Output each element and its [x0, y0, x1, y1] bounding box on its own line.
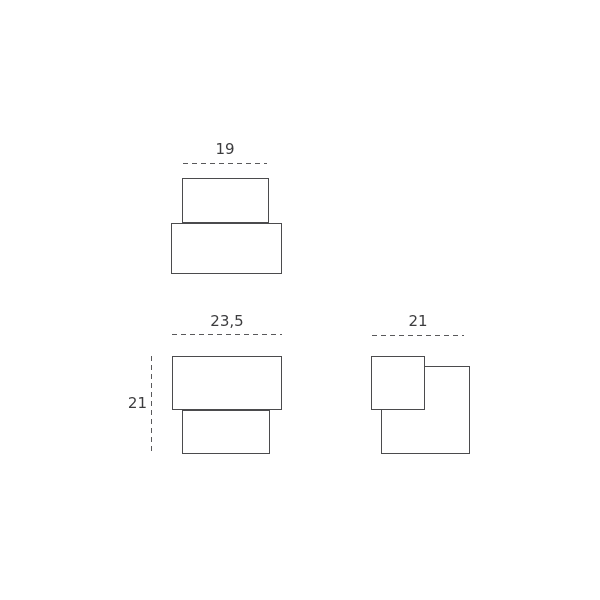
front-view-width-dimension-label: 23,5	[172, 312, 282, 330]
front-view-upper-rect-outline	[172, 356, 282, 410]
dimension-diagram: 19 23,5 21 21	[0, 0, 600, 600]
side-view-width-dimension-line	[372, 335, 464, 336]
front-view-width-dimension-line	[172, 334, 282, 335]
front-view-height-dimension-line	[151, 356, 152, 451]
top-view-width-dimension-label: 19	[183, 140, 267, 158]
top-view-upper-rect-outline	[182, 178, 269, 223]
front-view-height-dimension-label: 21	[114, 394, 147, 412]
side-view-front-square-outline	[371, 356, 425, 410]
front-view-lower-rect-outline	[182, 410, 270, 454]
top-view-width-dimension-line	[183, 163, 267, 164]
side-view-width-dimension-label: 21	[372, 312, 464, 330]
top-view-lower-rect-outline	[171, 223, 282, 274]
